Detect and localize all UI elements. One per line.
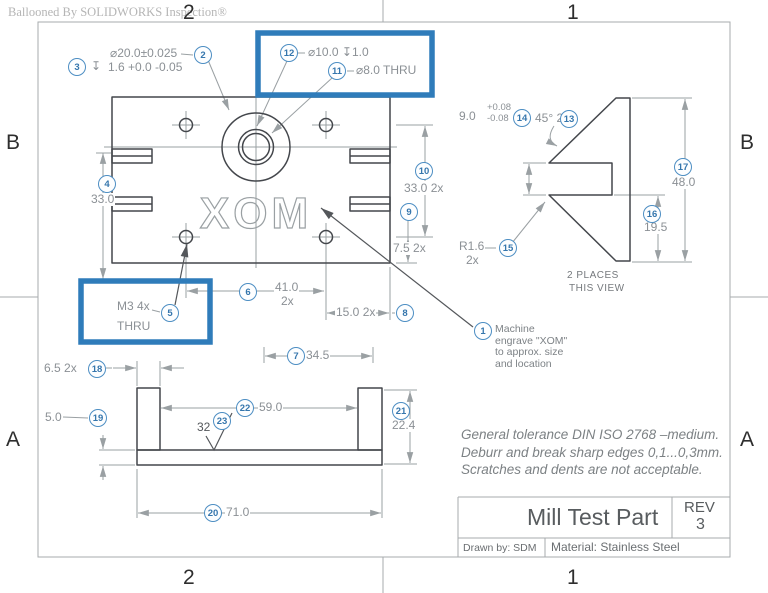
balloon-6[interactable]: 6 [239,283,257,301]
depth-symbol-icon: ↧ [90,60,102,73]
balloon-17[interactable]: 17 [674,158,692,176]
title-block-rev-label: REV [684,499,715,516]
dim-label-59: 59.0 [258,401,283,414]
zone-label-top-1: 1 [567,1,579,25]
dim-label-5-0: 5.0 [44,411,63,424]
dim-label-22-4: 22.4 [391,419,416,432]
dim-label-15-2x: 15.0 2x [335,306,376,319]
zone-label-bottom-2: 2 [183,566,195,590]
dim-label-19-5: 19.5 [643,221,668,234]
dim-label-33-2x: 33.0 2x [403,182,444,195]
balloon-10[interactable]: 10 [415,162,433,180]
engrave-note-line4: and location [495,359,567,371]
dim-label-48: 48.0 [671,176,696,189]
dim-label-cbore-dia: ⌀20.0±0.025 [109,47,178,60]
balloon-3[interactable]: 3 [68,58,86,76]
general-note-line1: General tolerance DIN ISO 2768 –medium. [461,426,723,444]
general-notes: General tolerance DIN ISO 2768 –medium. … [461,426,723,479]
balloon-15[interactable]: 15 [499,239,517,257]
balloon-2[interactable]: 2 [194,46,212,64]
dim-label-9: 9.0 [458,110,477,123]
balloon-11[interactable]: 11 [328,62,346,80]
zone-label-left-a: A [6,428,20,452]
drawing-sheet: XOM Ballooned By SOLIDWORKS Inspection® … [0,0,768,593]
title-block-material: Material: Stainless Steel [551,540,680,554]
balloon-20[interactable]: 20 [204,504,222,522]
dim-label-r1-6-qty: 2x [465,254,480,267]
dim-label-m3-line1: M3 4x [116,300,151,313]
balloon-12[interactable]: 12 [280,44,298,62]
dim-label-32-finish: 32 [196,421,211,434]
balloon-16[interactable]: 16 [643,205,661,223]
title-block-drawn-by: Drawn by: SDM [463,542,537,554]
dim-label-71: 71.0 [225,506,250,519]
dim-label-41-qty: 2x [280,295,295,308]
general-note-line3: Scratches and dents are not acceptable. [461,461,723,479]
dim-label-8-thru: ⌀8.0 THRU [355,64,417,77]
balloon-23[interactable]: 23 [213,412,231,430]
balloon-14[interactable]: 14 [513,109,531,127]
balloon-19[interactable]: 19 [89,409,107,427]
dim-label-41: 41.0 [274,281,299,294]
title-block-part-name: Mill Test Part [527,504,658,531]
general-note-line2: Deburr and break sharp edges 0,1...0,3mm… [461,444,723,462]
view-note-places: 2 PLACES [567,270,619,281]
dim-label-9-minus: -0.08 [486,114,510,124]
zone-label-bottom-1: 1 [567,566,579,590]
engrave-note-line3: to approx. size [495,347,567,359]
balloon-7[interactable]: 7 [287,347,305,365]
dim-label-34-5: 34.5 [305,349,330,362]
dim-label-r1-6: R1.6 [458,240,485,253]
dim-label-cbore-depth: 1.6 +0.0 -0.05 [107,61,183,74]
dim-label-33-left: 33.0 [90,193,115,206]
balloon-13[interactable]: 13 [560,110,578,128]
dim-label-10-depth: ⌀10.0 ↧1.0 [307,46,370,59]
zone-label-top-2: 2 [183,1,195,25]
dim-label-m3-line2: THRU [116,320,151,333]
balloon-21[interactable]: 21 [392,402,410,420]
zone-label-right-b: B [740,131,754,155]
engrave-note-line1: Machine [495,324,567,336]
balloon-22[interactable]: 22 [236,399,254,417]
zone-label-right-a: A [740,428,754,452]
engraved-text: XOM [200,189,312,238]
dim-label-9-plus: +0.08 [486,103,512,113]
balloon-1[interactable]: 1 [474,322,492,340]
dim-label-6-5-2x: 6.5 2x [43,362,78,375]
view-note-this-view: THIS VIEW [569,283,625,294]
balloon-8[interactable]: 8 [396,304,414,322]
zone-label-left-b: B [6,131,20,155]
balloon-9[interactable]: 9 [400,203,418,221]
dim-label-7-5-2x: 7.5 2x [392,242,427,255]
balloon-5[interactable]: 5 [161,304,179,322]
title-block-rev-value: 3 [696,516,705,534]
balloon-4[interactable]: 4 [98,175,116,193]
balloon-18[interactable]: 18 [88,360,106,378]
engrave-note: Machine engrave "XOM" to approx. size an… [495,324,567,370]
